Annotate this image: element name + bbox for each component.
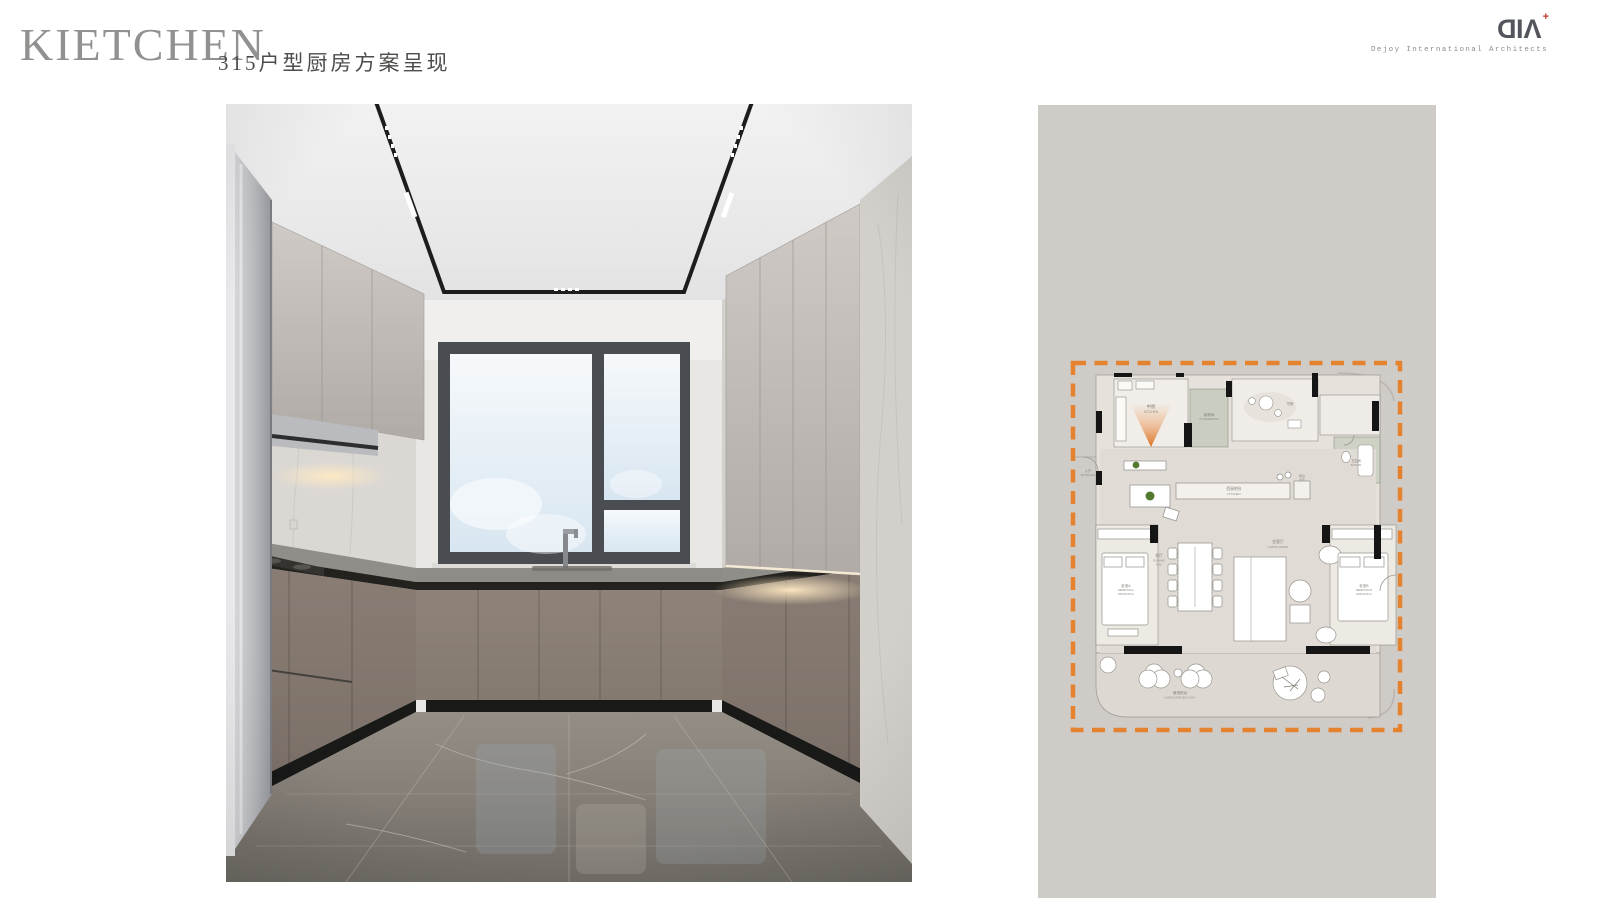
label-dining-zh: 餐厅 [1155, 553, 1163, 558]
label-bar-zh: 吧台 [1299, 473, 1305, 478]
dia-logo-mark: DIΛ+ [1371, 16, 1548, 43]
label-living-zh: 会客厅 [1272, 539, 1284, 544]
label-bedroom-b-zh: 卧室B [1359, 583, 1369, 588]
logo-letter-a: Λ [1524, 14, 1542, 44]
label-housekeeping-zh: 家政间 [1204, 412, 1215, 417]
logo-plus-icon: + [1543, 11, 1549, 23]
logo-letter-d: D [1497, 16, 1517, 43]
kitchen-render-photo [226, 104, 912, 882]
label-bedroom-a-size: 1800X2100mm [1118, 593, 1134, 596]
label-island-zh: 西厨吧台 [1226, 486, 1241, 491]
label-bedroom-a-zh: 卧室A [1121, 583, 1131, 588]
slide: KIETCHEN 315户型厨房方案呈现 DIΛ+ Dejoy Internat… [0, 0, 1600, 900]
floorplan-panel: 中厨 KITCHEN 家政间 HOUSEKEEPING 书房 卫生间 BATH … [1038, 105, 1436, 898]
label-bar-en: BAR [1300, 479, 1305, 482]
label-study-zh: 书房 [1286, 401, 1294, 406]
label-bedroom-a-en: BEDROOM A [1118, 588, 1134, 592]
label-living-en: LIVING ROOM [1268, 545, 1289, 549]
plan-closet-room [1320, 395, 1380, 435]
dia-logo-caption: Dejoy International Architects [1371, 46, 1548, 54]
label-bedroom-b-en: BEDROOM B [1356, 588, 1372, 592]
page-subtitle: 315户型厨房方案呈现 [218, 47, 451, 77]
label-balcony-en: LANDSCAPE BALCONY [1164, 696, 1195, 700]
label-housekeeping-en: HOUSEKEEPING [1199, 418, 1218, 421]
label-island-en: KITCHEN [1227, 492, 1240, 496]
label-bath-en: BATH RM [1351, 464, 1362, 467]
label-entrance-en: ENTRANCE [1081, 473, 1096, 477]
label-kitchen-zh: 中厨 [1147, 403, 1156, 410]
label-bath-zh: 卫生间 [1351, 458, 1361, 463]
label-kitchen-en: KITCHEN [1144, 410, 1159, 414]
label-balcony-zh: 景观阳台 [1173, 690, 1188, 695]
label-dining-en2: R.M. [1156, 563, 1162, 567]
label-bedroom-b-size: 1800X2100mm [1356, 593, 1372, 596]
logo-letter-i: I [1516, 14, 1524, 44]
dia-logo: DIΛ+ Dejoy International Architects [1371, 16, 1548, 54]
label-entrance-zh: 入户 [1085, 468, 1092, 473]
floorplan: 中厨 KITCHEN 家政间 HOUSEKEEPING 书房 卫生间 BATH … [1038, 105, 1436, 898]
